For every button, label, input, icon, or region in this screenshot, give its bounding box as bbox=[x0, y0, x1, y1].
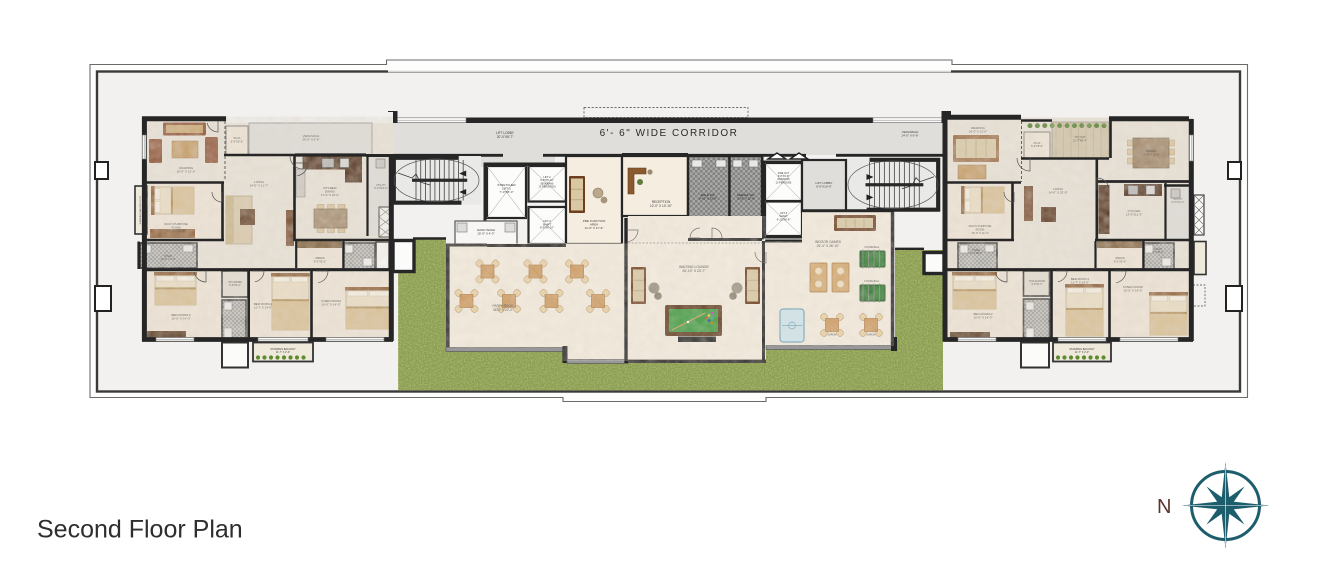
svg-text:RECEPTION12'-0" X 10'-10": RECEPTION12'-0" X 10'-10" bbox=[650, 200, 672, 208]
svg-text:N: N bbox=[1157, 496, 1171, 518]
svg-text:LIFT LOBBY20'-0"X8'-7": LIFT LOBBY20'-0"X8'-7" bbox=[496, 131, 515, 139]
svg-text:HAND WASH15'-9" X 4'-3": HAND WASH15'-9" X 4'-3" bbox=[477, 228, 495, 236]
svg-text:STANDING BALCONY 15'X2': STANDING BALCONY 15'X2' bbox=[139, 195, 142, 224]
svg-text:VERANDAH14'-0" X 6'-6": VERANDAH14'-0" X 6'-6" bbox=[901, 130, 918, 138]
svg-text:6'- 6" WIDE CORRIDOR: 6'- 6" WIDE CORRIDOR bbox=[600, 128, 739, 139]
svg-text:FEMALE TOI.6'-10" X 12'-6": FEMALE TOI.6'-10" X 12'-6" bbox=[737, 193, 755, 200]
svg-text:MALE TOI.9'-10" X 12'-6": MALE TOI.9'-10" X 12'-6" bbox=[699, 193, 717, 201]
svg-text:LIFT LOBBY6'-6"X10'-6": LIFT LOBBY6'-6"X10'-6" bbox=[816, 181, 833, 189]
svg-text:Second Floor Plan: Second Floor Plan bbox=[37, 516, 243, 544]
